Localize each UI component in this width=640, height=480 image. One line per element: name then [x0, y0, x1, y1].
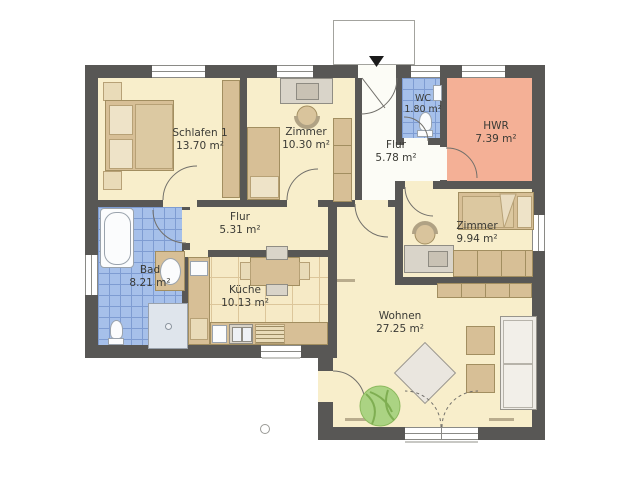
terrace-door-post: [441, 427, 442, 440]
sofa-cushion: [503, 364, 533, 408]
micro-label: [489, 418, 514, 421]
room-area: 1.80 m²: [404, 104, 441, 115]
room-name: Bad: [129, 264, 170, 277]
room-name: Flur: [375, 139, 416, 152]
room-label-flur-entry: Flur 5.78 m²: [375, 139, 416, 165]
room-label-flur: Flur 5.31 m²: [219, 211, 260, 237]
wall-wc-left: [396, 78, 402, 145]
kitchen-appliance-2: [190, 318, 208, 340]
sofa-cushion: [503, 320, 533, 364]
door-gap-zimmer2: [405, 181, 433, 189]
room-name: HWR: [475, 120, 516, 133]
room-area: 10.30 m²: [282, 139, 330, 152]
room-area: 5.78 m²: [375, 152, 416, 165]
blanket: [135, 104, 173, 169]
kitchen-table: [250, 257, 300, 286]
pillow: [109, 105, 133, 135]
wall-schlafen-zimmer: [240, 78, 247, 200]
sill-terrace: [405, 441, 478, 443]
door-gap-schlafen1: [163, 200, 197, 207]
room-name: Zimmer: [282, 126, 330, 139]
door-gap-west: [318, 371, 333, 402]
room-label-bad: Bad 8.21 m²: [129, 264, 170, 290]
toilet-bowl-bad: [110, 320, 123, 339]
floor-plan: Schlafen 1 13.70 m² Zimmer 10.30 m² Flur…: [0, 0, 640, 480]
entrance-canopy: [333, 20, 415, 65]
wall-hall-pier: [388, 200, 396, 207]
sink-basin: [232, 327, 242, 342]
side-table-top: [466, 326, 495, 355]
window-zimmer1: [277, 65, 313, 78]
room-area: 8.21 m²: [129, 277, 170, 290]
door-gap-zimmer1: [287, 200, 318, 207]
room-name: Zimmer: [456, 220, 497, 233]
door-gap-hwr: [440, 147, 447, 180]
room-label-wc: WC 1.80 m²: [404, 93, 441, 115]
window-bad: [85, 255, 98, 295]
room-name: Flur: [219, 211, 260, 224]
room-label-hwr: HWR 7.39 m²: [475, 120, 516, 146]
pillow: [109, 139, 133, 169]
site-marker-circle: [260, 424, 270, 434]
wall-zimmer-hall: [355, 78, 362, 200]
toilet-tank-wc: [417, 130, 433, 137]
room-area: 13.70 m²: [172, 140, 227, 153]
room-label-wohnen: Wohnen 27.25 m²: [376, 310, 424, 336]
room-area: 27.25 m²: [376, 323, 424, 336]
laptop: [296, 83, 319, 100]
room-name: WC: [404, 93, 441, 104]
wall-kueche-wohnen: [328, 200, 337, 358]
nightstand-top: [103, 82, 122, 101]
pillow: [517, 196, 532, 228]
kitchen-chair-bottom: [266, 284, 288, 296]
kitchen-chair-right: [299, 262, 310, 280]
room-label-schlafen1: Schlafen 1 13.70 m²: [172, 127, 227, 153]
room-area: 10.13 m²: [221, 297, 269, 310]
wardrobe-zimmer2: [453, 250, 533, 277]
sill-kueche: [262, 357, 300, 359]
wall-zimmer2-left: [395, 181, 403, 285]
nightstand-bottom: [103, 171, 122, 190]
room-label-zimmer1: Zimmer 10.30 m²: [282, 126, 330, 152]
window-hwr: [462, 65, 505, 78]
micro-label: [345, 418, 367, 421]
door-gap-wohnen: [355, 200, 388, 207]
room-name: Wohnen: [376, 310, 424, 323]
kitchen-appliance: [190, 261, 208, 276]
sink-basin: [242, 327, 252, 342]
window-schlafen1: [152, 65, 205, 78]
stove: [255, 324, 285, 344]
laptop: [428, 251, 448, 267]
door-gap-entrance: [358, 65, 396, 78]
window-wc: [411, 65, 440, 78]
room-area: 7.39 m²: [475, 133, 516, 146]
room-name: Küche: [221, 284, 269, 297]
sideboard: [437, 283, 532, 298]
room-label-kueche: Küche 10.13 m²: [221, 284, 269, 310]
bed-foot: [250, 176, 279, 198]
bathtub-inner: [104, 212, 131, 265]
room-area: 5.31 m²: [219, 224, 260, 237]
shower-drain: [165, 323, 172, 330]
wall-outer-left: [85, 65, 98, 358]
kitchen-chair-top: [266, 246, 288, 260]
kitchen-chair-left: [240, 262, 251, 280]
room-area: 9.94 m²: [456, 233, 497, 246]
side-table-bottom: [466, 364, 495, 393]
room-name: Schlafen 1: [172, 127, 227, 140]
door-gap-kueche: [184, 250, 208, 257]
dishwasher: [212, 325, 227, 343]
wardrobe-zimmer1: [333, 118, 352, 202]
door-gap-bad: [182, 210, 190, 243]
room-label-zimmer2: Zimmer 9.94 m²: [456, 220, 497, 246]
toilet-tank-bad: [108, 338, 124, 345]
micro-label: [337, 279, 355, 282]
